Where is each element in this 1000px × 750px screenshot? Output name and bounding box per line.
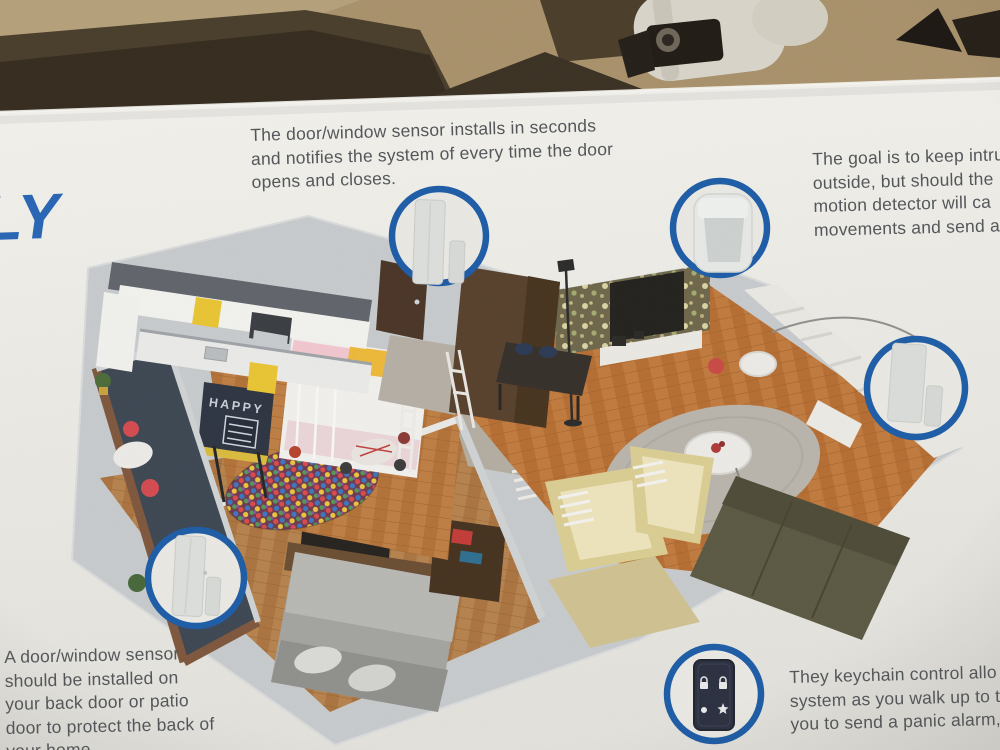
keychain-remote-description: They keychain control allo system as you… [789,661,1000,737]
brand-logo: LY [0,179,67,256]
back-door-sensor-description: A door/window sensor should be installed… [4,642,215,750]
packaging-photo-scene: HAPPY [0,0,1000,750]
motion-detector-description: The goal is to keep intru outside, but s… [812,143,1000,242]
box-photo: HAPPY [0,0,1000,750]
door-window-sensor-description: The door/window sensor installs in secon… [250,114,614,195]
text-line: door to protect the back of [5,712,214,740]
vignette [0,0,1000,750]
text-line: movements and send a [814,214,1000,242]
